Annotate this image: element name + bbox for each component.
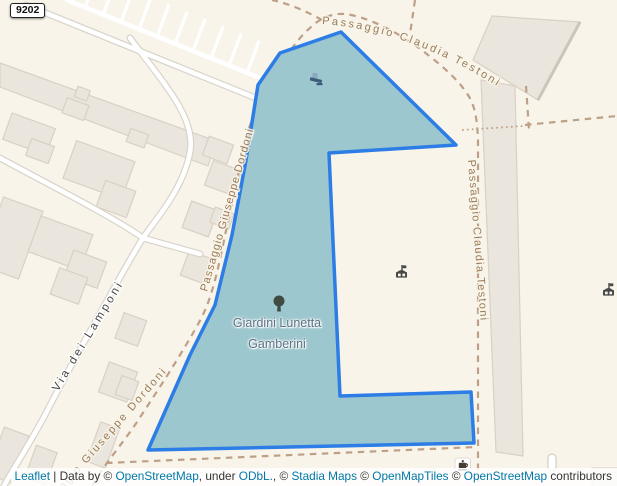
- openmaptiles-link[interactable]: OpenMapTiles: [372, 469, 448, 483]
- attribution-text: , ©: [273, 469, 292, 483]
- stadia-maps-link[interactable]: Stadia Maps: [291, 469, 357, 483]
- odbl-link[interactable]: ODbL.: [239, 469, 273, 483]
- attribution-text: ©: [449, 469, 464, 483]
- playground-icon: [396, 265, 407, 278]
- leaflet-link[interactable]: Leaflet: [15, 469, 50, 483]
- attribution-text: contributors: [547, 469, 612, 483]
- attribution-text: ©: [357, 469, 372, 483]
- openstreetmap-contributors-link[interactable]: OpenStreetMap: [464, 469, 547, 483]
- park-label-line1: Giardini Lunetta: [233, 313, 321, 334]
- park-label-line2: Gamberini: [233, 334, 321, 355]
- attribution-text: , under: [199, 469, 239, 483]
- map-tiles: Passaggio Claudia Testoni Passaggio Clau…: [0, 0, 617, 486]
- openstreetmap-link[interactable]: OpenStreetMap: [116, 469, 199, 483]
- attribution-text: | Data by ©: [50, 469, 116, 483]
- route-badge: 9202: [10, 3, 45, 18]
- park-polygon[interactable]: [148, 32, 474, 450]
- park-label: Giardini Lunetta Gamberini: [233, 313, 321, 355]
- attribution-bar: Leaflet | Data by © OpenStreetMap, under…: [11, 468, 617, 486]
- playground-icon: [603, 283, 614, 296]
- map-canvas[interactable]: Passaggio Claudia Testoni Passaggio Clau…: [0, 0, 617, 486]
